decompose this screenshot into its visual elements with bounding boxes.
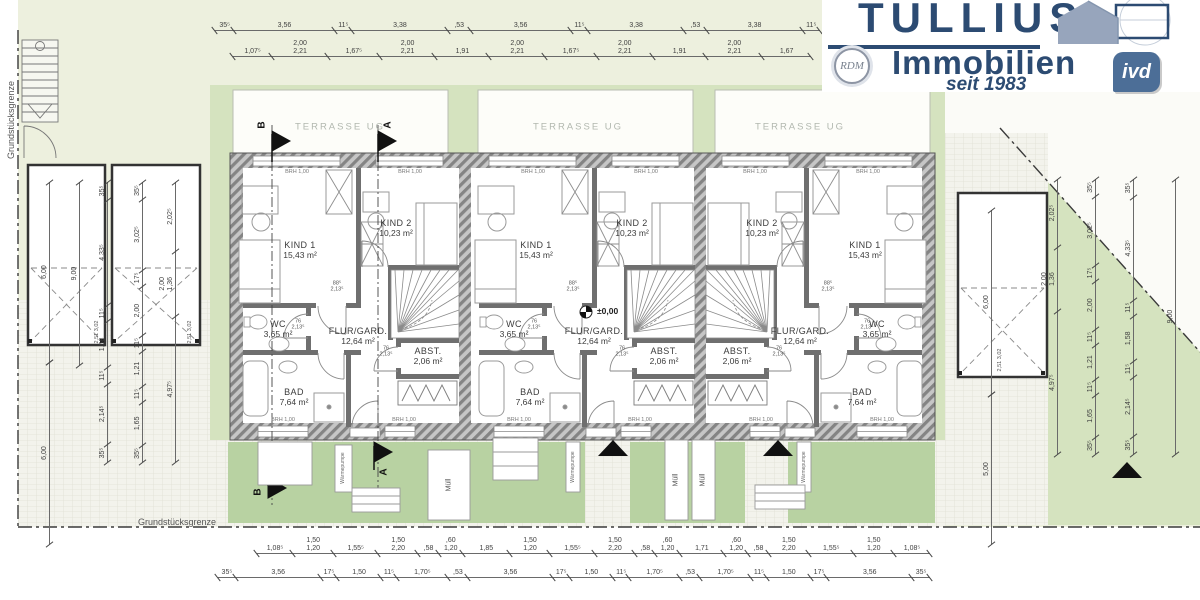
dim-value: 1,85 — [463, 545, 510, 553]
dim-value: 3,56 — [236, 569, 321, 577]
room-label-kind1-unit1: KIND 1 15,43 m² — [283, 240, 317, 260]
dim-value: 1,91 — [653, 48, 707, 56]
section-letter-a-top: A — [383, 121, 394, 128]
room-label-flur-unit1: FLUR/GARD. 12,64 m² — [329, 326, 388, 346]
level-annotation: ±0,00 — [597, 306, 618, 316]
dim-value: 6,00 — [41, 182, 49, 362]
dim-chain-right-b: 35⁵1,6511⁵1,2111⁵2,0017⁵3,02⁵35⁵ — [1079, 179, 1096, 454]
door-size-label: 88⁵ 2,13⁵ — [822, 281, 835, 294]
dim-value: 3,56 — [471, 22, 571, 30]
dim-value: 1,67 — [762, 48, 811, 56]
dim-value: 1,58 — [99, 321, 107, 367]
heat-pump-label: Wärmepumpe — [570, 451, 576, 482]
room-label-wc-unit1: WC 3,65 m² — [264, 319, 293, 339]
dim-value: 3,02⁵ — [1087, 196, 1095, 265]
trash-label: Müll — [673, 474, 680, 487]
dim-value: 1,70⁵ — [629, 569, 680, 577]
room-label-kind2-unit1: KIND 2 10,23 m² — [379, 218, 413, 238]
dim-value: 1,50 2,20 — [769, 537, 810, 553]
room-label-abst-unit1: ABST. 2,06 m² — [414, 346, 443, 366]
dim-value: 1,08⁵ — [257, 545, 293, 553]
section-letter-a-bottom: A — [379, 468, 390, 475]
dim-value: 2,00 1,36 — [1041, 247, 1057, 311]
dim-value: 1,21 — [1087, 345, 1095, 380]
brh-label: BRH 1,00 — [398, 169, 422, 175]
dim-value: 1,50 2,20 — [595, 537, 636, 553]
boundary-label-bottom: Grundstücksgrenze — [138, 517, 216, 527]
dim-value: 1,55⁵ — [809, 545, 853, 553]
room-label-bad-unit2: BAD 7,64 m² — [516, 387, 545, 407]
brh-label: BRH 1,00 — [507, 417, 531, 423]
dim-value: 1,65 — [134, 402, 142, 445]
door-size-label: 88⁵ 2,13⁵ — [331, 281, 344, 294]
dim-chain-right-total: 9,00 — [1159, 179, 1176, 454]
dim-value: 3,38 — [707, 22, 803, 30]
trash-label: Müll — [446, 479, 453, 492]
brand-tagline: seit 1983 — [946, 74, 1026, 96]
dim-value: 3,38 — [588, 22, 684, 30]
dim-value: 2,00 — [1087, 281, 1095, 329]
brh-label: BRH 1,00 — [749, 417, 773, 423]
brh-label: BRH 1,00 — [285, 169, 309, 175]
dim-value: 2,02⁵ — [167, 182, 175, 251]
garage-dim-small: 2,51 3,02 — [187, 321, 193, 344]
dim-value: 1,07⁵ — [233, 48, 272, 56]
dim-value: 6,00 — [983, 210, 991, 394]
dim-value: 9,00 — [71, 182, 79, 365]
dim-value: 2,14⁵ — [1125, 377, 1133, 436]
room-label-wc-unit2: WC 3,65 m² — [500, 319, 529, 339]
dim-value: 1,58 — [1125, 316, 1133, 361]
ivd-badge: ivd — [1113, 52, 1160, 92]
dim-value: 2,00 2,21 — [597, 40, 653, 56]
terrace-label-1: TERRASSE UG — [295, 122, 385, 133]
garage-dim-small: 2,51 3,02 — [997, 349, 1003, 372]
dim-chain-garage-length: 9,00 — [63, 182, 80, 365]
dim-value: 1,50 2,20 — [378, 537, 419, 553]
brh-label: BRH 1,00 — [870, 417, 894, 423]
room-label-abst-unit2: ABST. 2,06 m² — [650, 346, 679, 366]
dim-value: 11⁵ — [803, 22, 820, 30]
dim-value: 1,67⁵ — [545, 48, 597, 56]
room-label-abst-unit3: ABST. 2,06 m² — [723, 346, 752, 366]
dim-chain-top-outer: 35⁵3,5611⁵3,38,533,5611⁵3,38,533,3811⁵ — [215, 14, 820, 31]
room-label-kind1-unit2: KIND 1 15,43 m² — [519, 240, 553, 260]
dim-value: 1,55⁵ — [334, 545, 378, 553]
heat-pump-label: Wärmepumpe — [801, 451, 807, 482]
dim-value: 35⁵ — [912, 569, 930, 577]
dim-value: 1,50 1,20 — [510, 537, 551, 553]
boundary-label-left: Grundstücksgrenze — [6, 81, 16, 159]
door-size-label: 76 2,13⁵ — [528, 319, 541, 332]
brh-label: BRH 1,00 — [628, 417, 652, 423]
dim-value: 2,00 — [134, 286, 142, 335]
door-size-label: 88⁵ 2,13⁵ — [567, 281, 580, 294]
trash-label: Müll — [700, 474, 707, 487]
room-label-kind2-unit3: KIND 2 10,23 m² — [745, 218, 779, 238]
rdm-badge: RDM — [834, 48, 870, 84]
dim-value: 2,00 2,21 — [489, 40, 545, 56]
dim-value: 2,00 2,21 — [272, 40, 328, 56]
door-size-label: 76 2,13⁵ — [380, 346, 393, 359]
dim-chain-left-b: 35⁵1,6511⁵1,2111⁵2,0017⁵3,02⁵35⁵ — [126, 182, 143, 462]
dim-chain-top-inner: 1,07⁵2,00 2,211,67⁵2,00 2,211,912,00 2,2… — [233, 40, 811, 57]
dim-value: 4,97⁵ — [1049, 311, 1057, 454]
dim-chain-left-front: 6,00 — [33, 362, 50, 544]
door-size-label: 76 2,13⁵ — [292, 319, 305, 332]
dim-value: 3,38 — [352, 22, 448, 30]
brh-label: BRH 1,00 — [856, 169, 880, 175]
dim-value: 1,71 — [680, 545, 724, 553]
room-label-flur-unit2: FLUR/GARD. 12,64 m² — [565, 326, 624, 346]
dim-value: 35⁵ — [1087, 179, 1095, 196]
heat-pump-label: Wärmepumpe — [340, 452, 346, 483]
dim-value: 3,56 — [234, 22, 334, 30]
dim-value: 5,00 — [983, 394, 991, 544]
dim-chain-right-front: 5,00 — [975, 394, 992, 544]
dim-chain-right-c: 35⁵2,14⁵11⁵1,5811⁵4,33⁵35⁵ — [1117, 179, 1134, 454]
dim-value: 1,70⁵ — [397, 569, 448, 577]
dim-value: 3,02⁵ — [134, 199, 142, 270]
house-icon — [1050, 0, 1200, 46]
dim-value: 2,14⁵ — [99, 384, 107, 444]
brh-label: BRH 1,00 — [271, 417, 295, 423]
dim-value: 1,08⁵ — [894, 545, 930, 553]
site-plan-page: TERRASSE UG TERRASSE UG TERRASSE UG KIND… — [0, 0, 1200, 600]
dim-value: 1,50 — [767, 569, 811, 577]
dim-value: 4,33⁵ — [1125, 197, 1133, 300]
door-size-label: 76 2,13⁵ — [861, 319, 874, 332]
section-letter-b-bottom: B — [253, 488, 264, 495]
dim-chain-right-a: 4,97⁵2,00 1,362,02⁵ — [1041, 179, 1058, 454]
dim-value: 1,91 — [435, 48, 489, 56]
dim-chain-left-c: 4,97⁵2,00 1,362,02⁵ — [159, 182, 176, 462]
dim-chain-right-garage-width: 6,00 — [975, 210, 992, 394]
dim-chain-bottom-inner: 1,08⁵1,50 1,201,55⁵1,50 2,20,58,60 1,201… — [257, 537, 930, 554]
dim-value: 35⁵ — [1125, 179, 1133, 197]
dim-value: 1,50 1,20 — [293, 537, 334, 553]
dim-value: 2,00 1,36 — [159, 251, 175, 316]
dim-value: 35⁵ — [99, 182, 107, 200]
dim-value: 9,00 — [1167, 179, 1175, 454]
dim-value: 3,56 — [468, 569, 553, 577]
dim-value: 1,70⁵ — [700, 569, 751, 577]
dim-value: 4,97⁵ — [167, 317, 175, 463]
dim-value: 1,65 — [1087, 395, 1095, 437]
section-letter-b-top: B — [257, 121, 268, 128]
dim-value: 6,00 — [41, 362, 49, 544]
dim-value: 4,33⁵ — [99, 200, 107, 305]
brh-label: BRH 1,00 — [521, 169, 545, 175]
dim-chain-left-a: 35⁵2,14⁵11⁵1,5811⁵4,33⁵35⁵ — [91, 182, 108, 462]
dim-value: 1,50 1,20 — [854, 537, 895, 553]
level-marker-icon — [580, 306, 592, 318]
room-label-bad-unit3: BAD 7,64 m² — [848, 387, 877, 407]
dim-value: 35⁵ — [134, 182, 142, 199]
dim-value: 2,02⁵ — [1049, 179, 1057, 247]
brand-panel: TULLIUS RDM Immobilien ivd seit 1983 — [822, 0, 1200, 92]
dim-value: 2,00 2,21 — [380, 40, 436, 56]
dim-value: 1,67⁵ — [328, 48, 380, 56]
dim-value: 2,00 2,21 — [706, 40, 762, 56]
dim-value: 1,50 — [337, 569, 381, 577]
door-size-label: 76 2,13⁵ — [773, 346, 786, 359]
door-size-label: 76 2,13⁵ — [616, 346, 629, 359]
dim-chain-garage-width: 6,00 — [33, 182, 50, 362]
terrace-label-3: TERRASSE UG — [755, 122, 845, 133]
room-label-flur-unit3: FLUR/GARD. 12,64 m² — [771, 326, 830, 346]
dim-value: 1,50 — [570, 569, 614, 577]
terrace-label-2: TERRASSE UG — [533, 122, 623, 133]
dim-chain-bottom-outer: 35⁵3,5617⁵1,5011⁵1,70⁵,533,5617⁵1,5011⁵1… — [218, 561, 930, 578]
brh-label: BRH 1,00 — [634, 169, 658, 175]
room-label-kind2-unit2: KIND 2 10,23 m² — [615, 218, 649, 238]
brh-label: BRH 1,00 — [743, 169, 767, 175]
room-label-bad-unit1: BAD 7,64 m² — [280, 387, 309, 407]
room-label-kind1-unit3: KIND 1 15,43 m² — [848, 240, 882, 260]
dim-value: 1,55⁵ — [550, 545, 594, 553]
dim-value: 1,21 — [134, 351, 142, 386]
brh-label: BRH 1,00 — [392, 417, 416, 423]
dim-value: 3,56 — [827, 569, 912, 577]
